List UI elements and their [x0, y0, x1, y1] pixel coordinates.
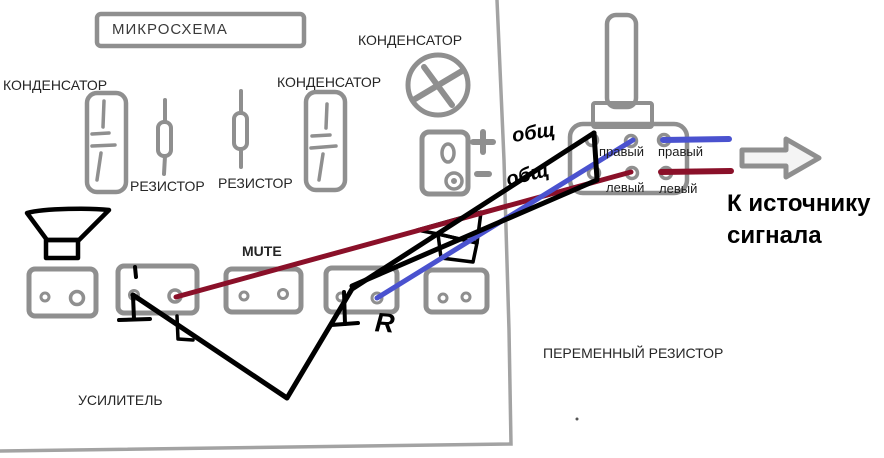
- resistor-2-label: РЕЗИСТОР: [218, 176, 293, 191]
- resistor-1-label: РЕЗИСТОР: [130, 179, 205, 194]
- speaker-icon-left: [27, 209, 109, 258]
- pot-pin-label-left-outer: левый: [659, 182, 697, 196]
- pot-pin-label-left-inner: левый: [606, 181, 644, 195]
- wire-common-tick: [135, 267, 136, 277]
- stray-dot: [576, 418, 579, 421]
- terminal-block-2: [118, 266, 197, 313]
- ground-symbol-1: [119, 296, 150, 320]
- pot-pin-label-right-outer: правый: [658, 145, 703, 159]
- capacitor-top-label: КОНДЕНСАТОР: [358, 33, 462, 48]
- pot-pin-label-right-inner: правый: [599, 145, 644, 159]
- resistor-symbol-2: [234, 91, 247, 167]
- capacitor-symbol-top: [408, 55, 468, 115]
- microchip-label: МИКРОСХЕМА: [112, 22, 228, 39]
- handwritten-right-mark: R: [374, 307, 396, 339]
- resistor-symbol-1: [158, 100, 171, 174]
- capacitor-mid-label: КОНДЕНСАТОР: [277, 75, 381, 90]
- potentiometer-shaft: [607, 15, 636, 107]
- wiring-diagram: МИКРОСХЕМА КОНДЕНСАТОР КОНДЕНСАТОР КОНДЕ…: [0, 0, 884, 458]
- capacitor-left-label: КОНДЕНСАТОР: [3, 78, 107, 93]
- wire-right-pot-to-source: [663, 139, 729, 140]
- wire-common-pot-jumper: [594, 133, 597, 179]
- to-signal-source-caption: К источнику сигнала: [727, 188, 884, 253]
- wire-right-channel: [377, 139, 729, 298]
- capacitor-symbol-mid: [306, 92, 345, 190]
- amplifier-label: УСИЛИТЕЛЬ: [78, 393, 163, 408]
- power-pads-box: [422, 132, 493, 194]
- arrow-right-icon: [742, 139, 819, 177]
- wire-left-pot-to-source: [661, 171, 731, 172]
- terminal-block-5: [426, 270, 487, 312]
- terminal-block-1: [29, 269, 96, 316]
- variable-resistor-label: ПЕРЕМЕННЫЙ РЕЗИСТОР: [543, 346, 723, 361]
- mute-label: MUTE: [242, 244, 282, 259]
- capacitor-symbol-left: [87, 93, 126, 192]
